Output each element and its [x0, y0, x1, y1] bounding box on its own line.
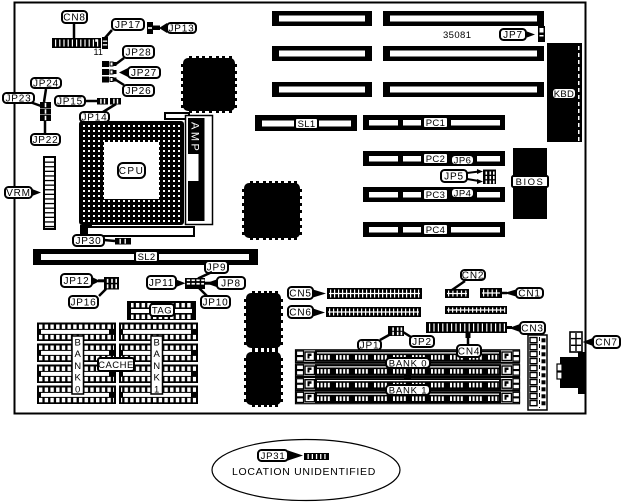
svg-text:JP23: JP23 — [6, 94, 32, 105]
svg-text:0: 0 — [75, 384, 80, 395]
svg-text:BANK 0: BANK 0 — [389, 359, 428, 370]
svg-text:CPU: CPU — [119, 166, 145, 177]
svg-text:CN7: CN7 — [595, 338, 617, 349]
svg-text:JP27: JP27 — [131, 68, 157, 79]
svg-text:PC4: PC4 — [426, 225, 445, 236]
svg-text:JP30: JP30 — [76, 236, 102, 247]
svg-text:PC2: PC2 — [426, 154, 445, 165]
svg-text:SL1: SL1 — [298, 119, 316, 130]
svg-text:JP4: JP4 — [454, 189, 472, 200]
svg-text:JP10: JP10 — [203, 298, 229, 309]
svg-text:K: K — [154, 373, 161, 384]
svg-text:35081: 35081 — [443, 30, 471, 41]
svg-text:CACHE: CACHE — [98, 360, 134, 371]
svg-text:A: A — [75, 349, 82, 360]
svg-text:JP17: JP17 — [115, 20, 141, 31]
svg-text:AMP: AMP — [189, 122, 201, 153]
svg-text:JP15: JP15 — [57, 97, 83, 108]
svg-text:CN3: CN3 — [521, 324, 543, 335]
svg-text:CN5: CN5 — [289, 289, 311, 300]
svg-text:JP22: JP22 — [33, 135, 59, 146]
svg-text:SL2: SL2 — [138, 252, 156, 263]
svg-text:N: N — [74, 361, 81, 372]
svg-text:11: 11 — [94, 47, 103, 57]
svg-text:JP31: JP31 — [261, 451, 286, 462]
svg-text:JP7: JP7 — [503, 30, 523, 41]
svg-text:PC1: PC1 — [426, 118, 445, 129]
svg-text:JP12: JP12 — [64, 276, 90, 287]
svg-text:BANK 1: BANK 1 — [389, 386, 428, 397]
svg-text:JP16: JP16 — [71, 298, 97, 309]
svg-text:B: B — [75, 338, 81, 349]
svg-text:JP2: JP2 — [412, 337, 432, 348]
svg-text:A: A — [154, 349, 161, 360]
svg-text:JP6: JP6 — [454, 156, 472, 167]
svg-text:CN8: CN8 — [63, 13, 85, 24]
svg-text:JP24: JP24 — [33, 79, 59, 90]
svg-text:JP13: JP13 — [169, 24, 195, 35]
svg-text:JP28: JP28 — [126, 48, 152, 59]
svg-text:PC3: PC3 — [426, 190, 445, 201]
svg-text:JP26: JP26 — [126, 86, 152, 97]
svg-text:CN1: CN1 — [518, 289, 540, 300]
svg-text:N: N — [153, 361, 160, 372]
svg-text:JP5: JP5 — [444, 172, 464, 183]
svg-text:JP8: JP8 — [221, 279, 241, 290]
svg-text:LOCATION UNIDENTIFIED: LOCATION UNIDENTIFIED — [232, 466, 376, 478]
svg-text:TAG: TAG — [152, 306, 172, 317]
svg-text:CN2: CN2 — [462, 271, 484, 282]
svg-text:B: B — [154, 338, 160, 349]
svg-text:K: K — [75, 373, 82, 384]
svg-text:BIOS: BIOS — [516, 177, 545, 188]
svg-text:1: 1 — [154, 384, 159, 395]
svg-text:VRM: VRM — [6, 188, 31, 199]
svg-text:CN6: CN6 — [289, 308, 311, 319]
svg-text:KBD: KBD — [554, 89, 574, 100]
svg-text:JP11: JP11 — [149, 278, 174, 289]
svg-text:CN4: CN4 — [458, 347, 480, 358]
